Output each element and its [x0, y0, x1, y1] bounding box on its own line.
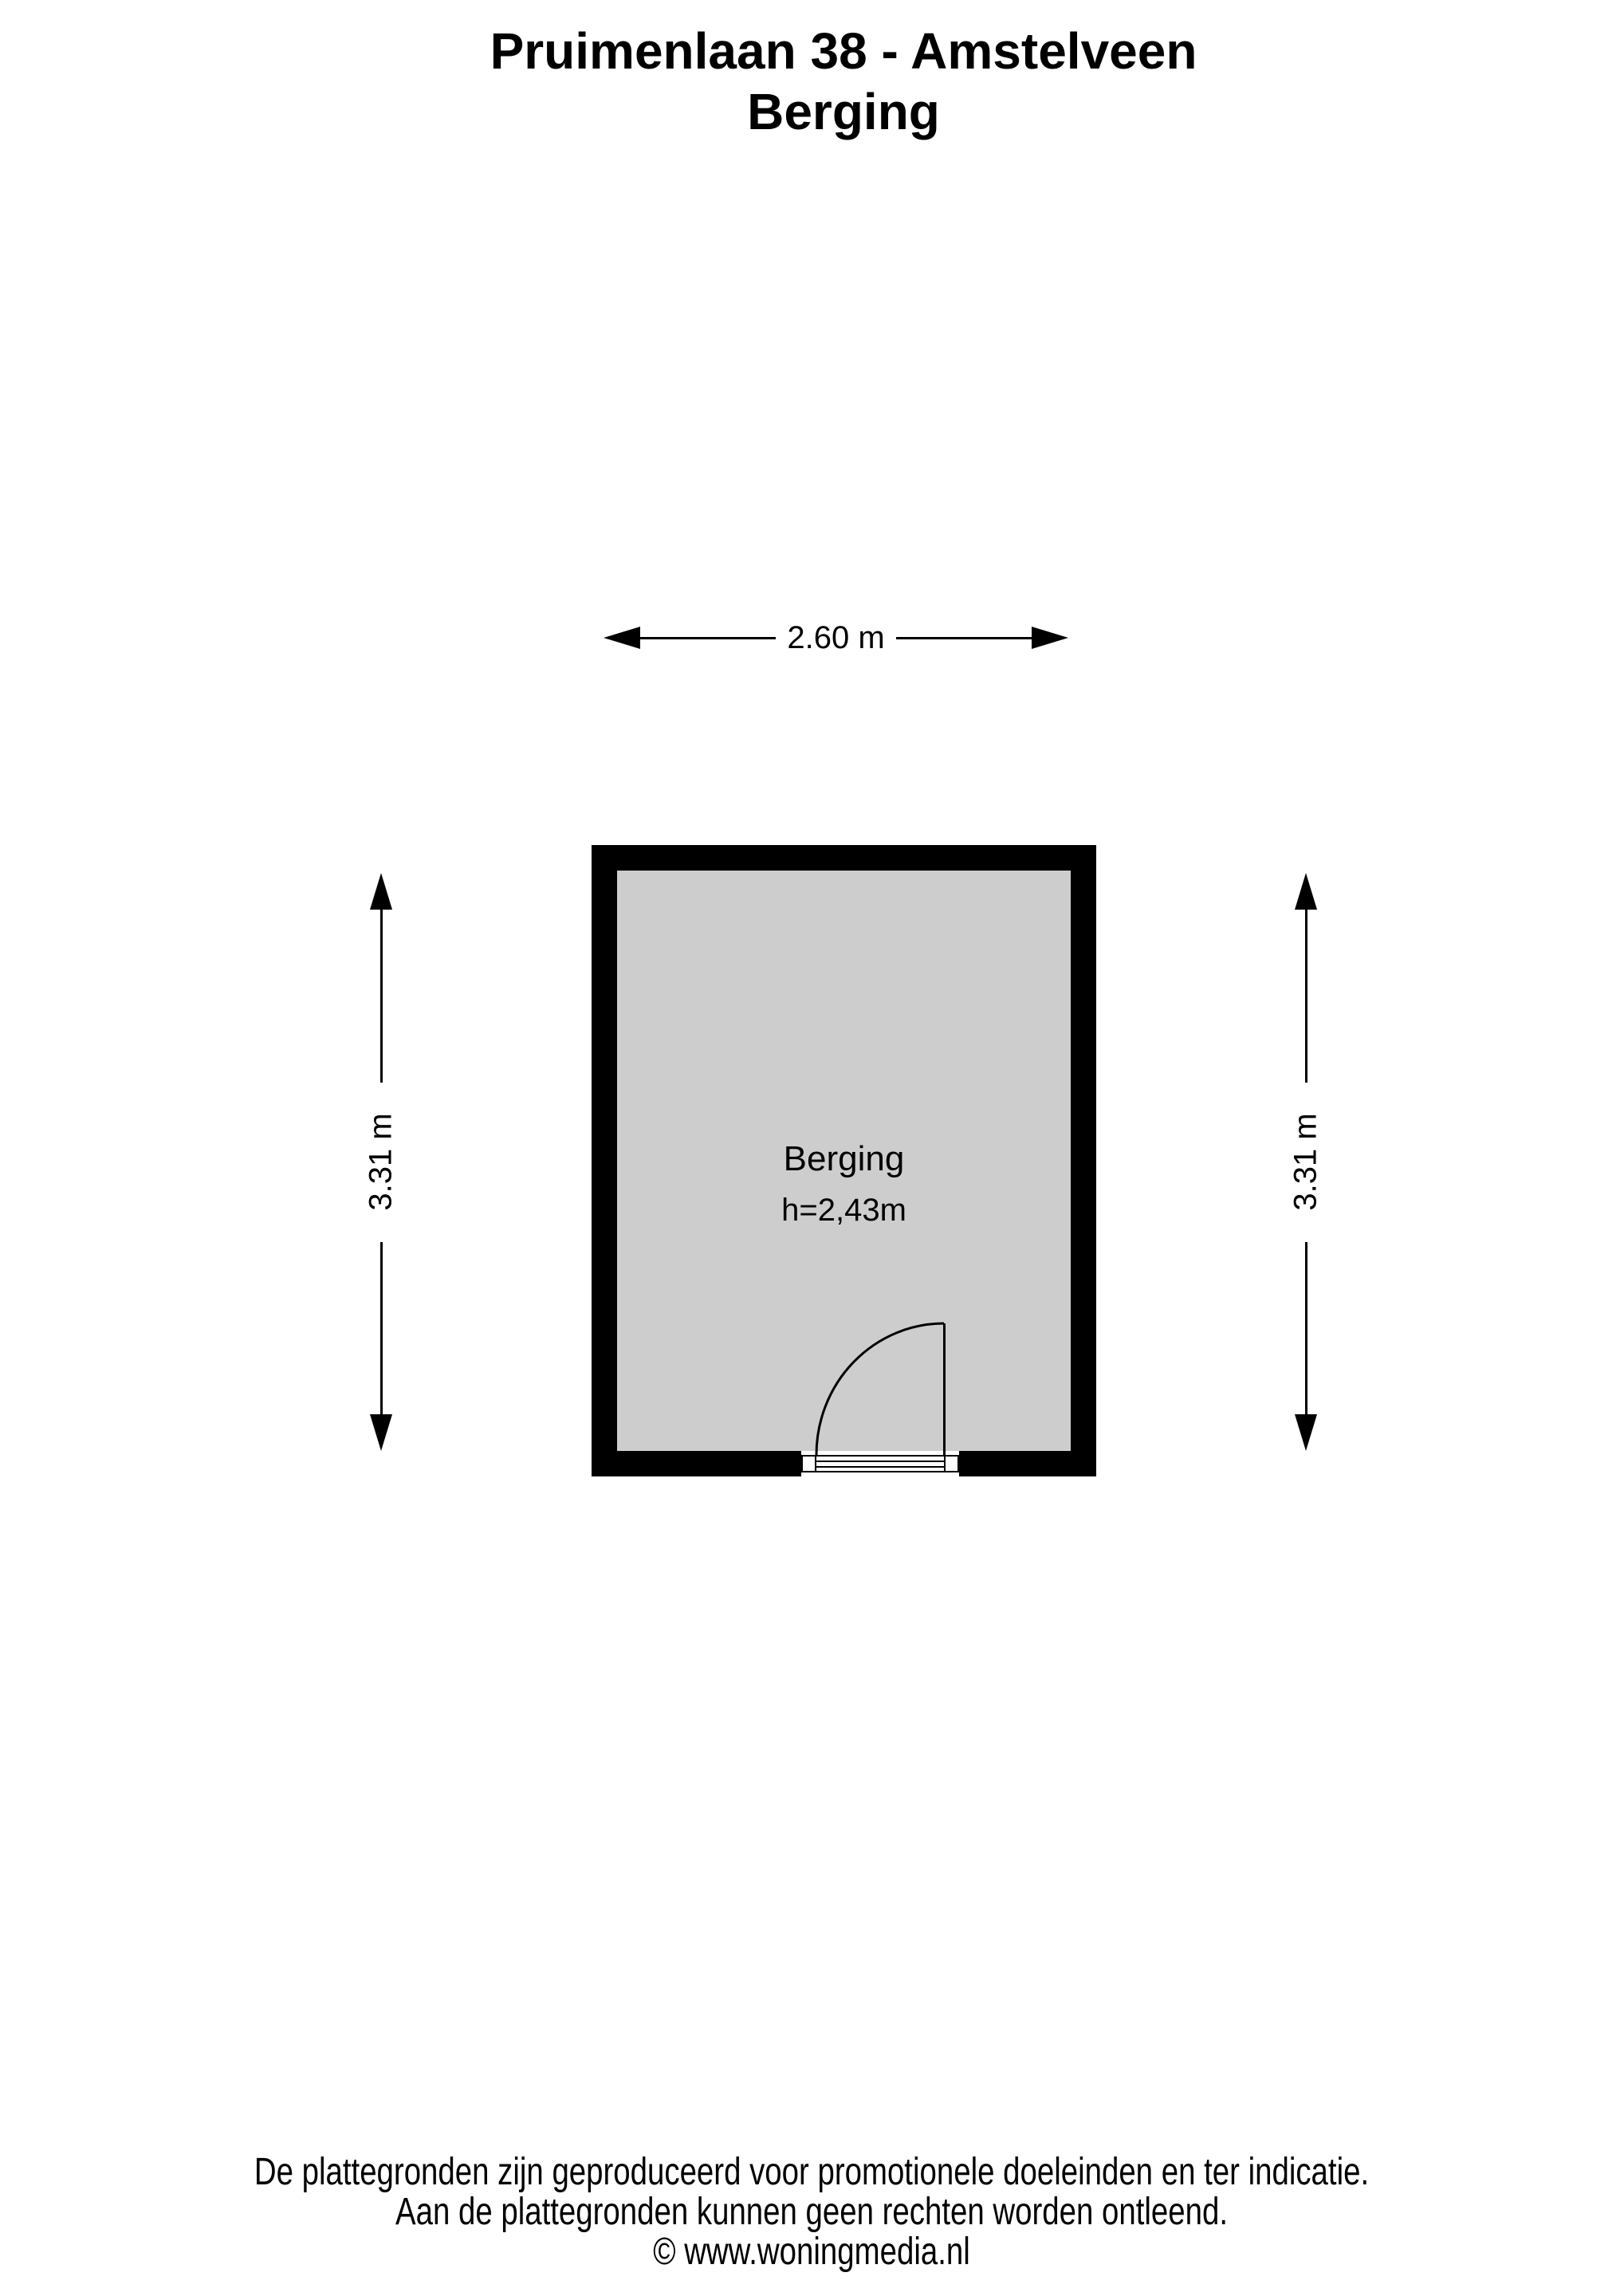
- dimension-width-top-label: 2.60 m: [776, 620, 895, 656]
- dimension-line: [896, 637, 1032, 639]
- page-title: Pruimenlaan 38 - Amstelveen Berging: [490, 21, 1197, 142]
- room-name: Berging: [592, 1138, 1096, 1180]
- room-ceiling-height: h=2,43m: [592, 1191, 1096, 1229]
- arrow-down-icon: [1295, 1414, 1317, 1451]
- door-sill: [816, 1455, 944, 1472]
- dimension-height-left-label: 3.31 m: [363, 1083, 399, 1242]
- arrow-right-icon: [1032, 627, 1068, 649]
- door-swing-arc: [814, 1321, 946, 1457]
- dimension-height-left-text: 3.31 m: [364, 1113, 399, 1210]
- arrow-up-icon: [1295, 873, 1317, 910]
- door-jamb-left: [801, 1455, 816, 1472]
- arrow-down-icon: [370, 1414, 392, 1451]
- title-subtitle: Berging: [490, 81, 1197, 142]
- door-jamb-right: [944, 1455, 959, 1472]
- dimension-line: [640, 637, 776, 639]
- dimension-line: [1305, 910, 1307, 1083]
- dimension-line: [1305, 1242, 1307, 1415]
- sill-line: [816, 1466, 944, 1468]
- footer-line-2: Aan de plattegronden kunnen geen rechten…: [254, 2192, 1369, 2232]
- dimension-height-right-label: 3.31 m: [1288, 1083, 1324, 1242]
- floor-plan-page: Pruimenlaan 38 - Amstelveen Berging 2.60…: [0, 0, 1624, 2296]
- footer-copyright: © www.woningmedia.nl: [254, 2232, 1369, 2272]
- footer-line-1: De plattegronden zijn geproduceerd voor …: [254, 2152, 1369, 2192]
- title-address: Pruimenlaan 38 - Amstelveen: [490, 21, 1197, 81]
- dimension-line: [380, 1242, 383, 1415]
- dimension-line: [380, 910, 383, 1083]
- dimension-height-right: 3.31 m: [1288, 873, 1324, 1451]
- arrow-up-icon: [370, 873, 392, 910]
- room-label: Berging h=2,43m: [592, 1138, 1096, 1229]
- dimension-height-left: 3.31 m: [363, 873, 399, 1451]
- dimension-height-right-text: 3.31 m: [1288, 1113, 1324, 1210]
- arrow-left-icon: [604, 627, 640, 649]
- footer-disclaimer: De plattegronden zijn geproduceerd voor …: [254, 2152, 1369, 2272]
- dimension-width-top: 2.60 m: [604, 619, 1068, 656]
- sill-line: [816, 1461, 944, 1462]
